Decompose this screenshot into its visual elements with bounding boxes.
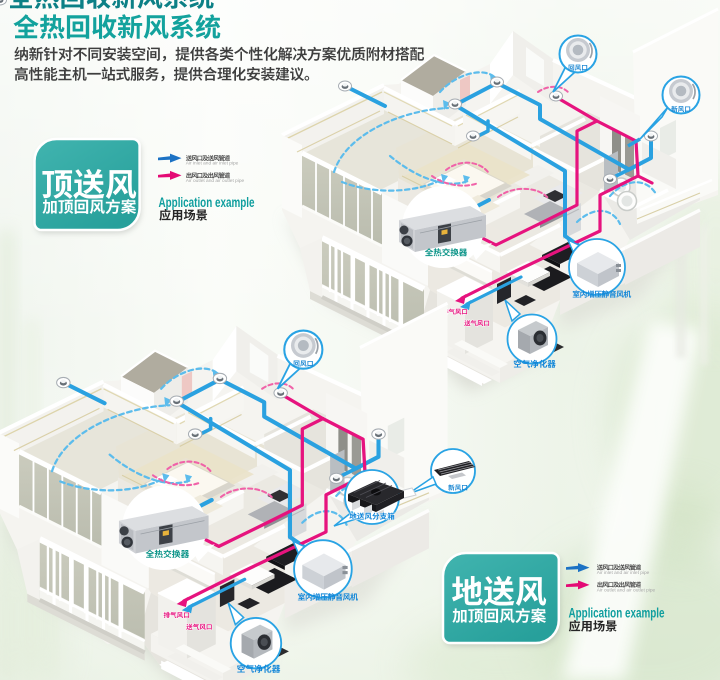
svg-text:Application example: Application example [159,195,255,211]
svg-text:Air inlet and air inlet pipe: Air inlet and air inlet pipe [186,161,239,167]
svg-text:Air outlet and air outlet pipe: Air outlet and air outlet pipe [597,587,656,593]
svg-text:Application example: Application example [569,606,665,622]
svg-text:Air outlet and air outlet pipe: Air outlet and air outlet pipe [186,178,245,184]
svg-text:Air inlet and air inlet pipe: Air inlet and air inlet pipe [597,570,650,576]
